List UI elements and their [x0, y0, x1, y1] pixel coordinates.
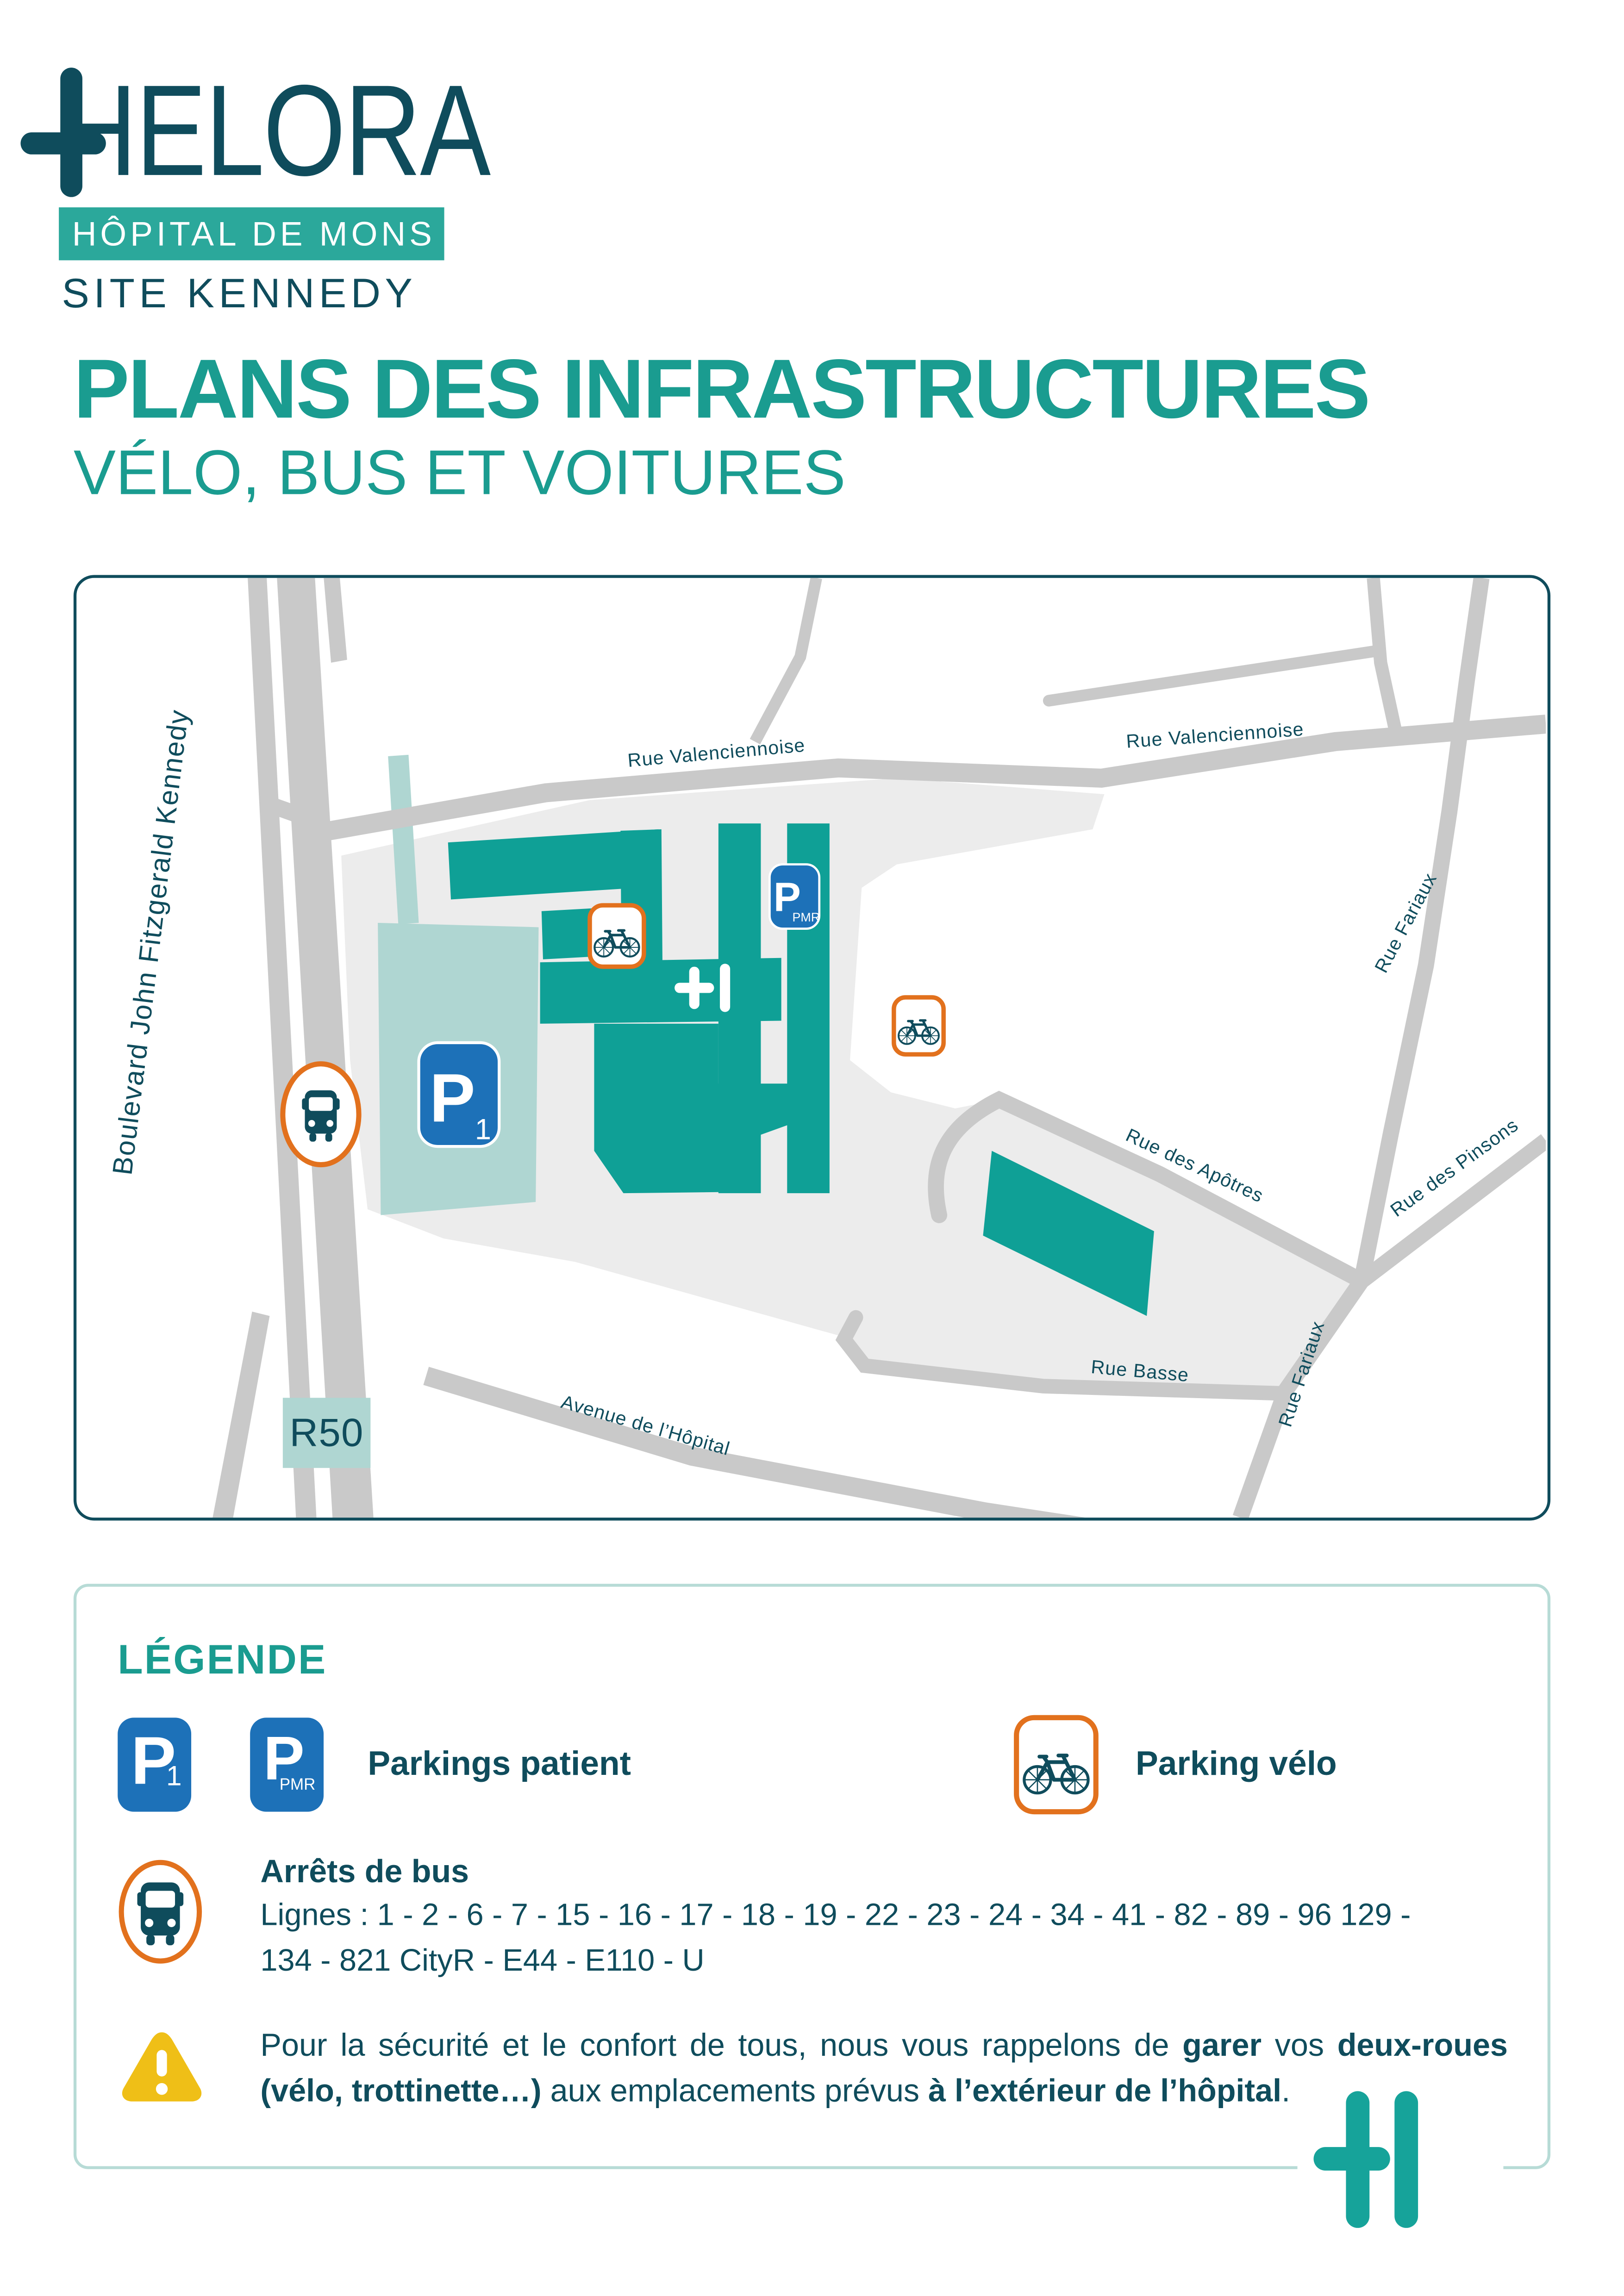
legend-heading: LÉGENDE [118, 1637, 327, 1684]
bus-lines-2: 134 - 821 CityR - E44 - E110 - U [260, 1944, 1525, 1979]
helora-corner-mark [1298, 2091, 1504, 2238]
bike-parking-marker-1 [590, 905, 644, 967]
r50-badge: R50 [283, 1398, 370, 1468]
bike-parking-marker-2 [894, 997, 943, 1054]
hospital-banner: HÔPITAL DE MONS [59, 207, 444, 260]
page-subtitle: VÉLO, BUS ET VOITURES [74, 438, 846, 510]
p1-parking-sign: P 1 [419, 1043, 500, 1146]
road-boulevard-fork [212, 1312, 269, 1518]
parkings-patient-label: Parkings patient [368, 1744, 631, 1784]
parking-velo-label: Parking vélo [1136, 1744, 1337, 1784]
road-avenue [426, 1376, 1233, 1518]
site-name: SITE KENNEDY [62, 271, 417, 318]
road-top-thin [755, 578, 817, 742]
pmr-sign-legend: P PMR [250, 1717, 324, 1811]
page-title: PLANS DES INFRASTRUCTURES [74, 341, 1369, 438]
bus-stop-legend-icon [118, 1859, 203, 1965]
warning-icon [118, 2027, 206, 2109]
label-boulevard: Boulevard John Fitzgerald Kennedy [106, 708, 194, 1176]
legend-box: LÉGENDE P 1 & P PMR Parkings patient Par… [74, 1584, 1550, 2169]
infographic-page: HELORA HÔPITAL DE MONS SITE KENNEDY PLAN… [0, 0, 1624, 2296]
helora-wordmark: HELORA [60, 56, 489, 206]
bus-stop-marker [283, 1064, 359, 1165]
plus-icon [1346, 2091, 1369, 2228]
svg-text:1: 1 [475, 1113, 491, 1145]
bar-icon [1394, 2091, 1418, 2228]
road-stub-top [324, 578, 347, 663]
site-map: R50 Boulevard John Fitzgerald Kennedy Ru… [76, 578, 1548, 1518]
bus-title: Arrêts de bus [260, 1853, 469, 1892]
road-topright-branch [1049, 651, 1376, 701]
map-container: R50 Boulevard John Fitzgerald Kennedy Ru… [74, 575, 1550, 1520]
bike-parking-legend-icon [1013, 1715, 1099, 1815]
svg-text:P: P [430, 1060, 475, 1136]
r50-label: R50 [290, 1411, 364, 1455]
p1-sign-legend: P 1 [118, 1717, 191, 1811]
bus-lines-1: Lignes : 1 - 2 - 6 - 7 - 15 - 16 - 17 - … [260, 1898, 1525, 1934]
pmr-parking-sign: P PMR [769, 865, 820, 929]
svg-text:PMR: PMR [793, 910, 820, 924]
